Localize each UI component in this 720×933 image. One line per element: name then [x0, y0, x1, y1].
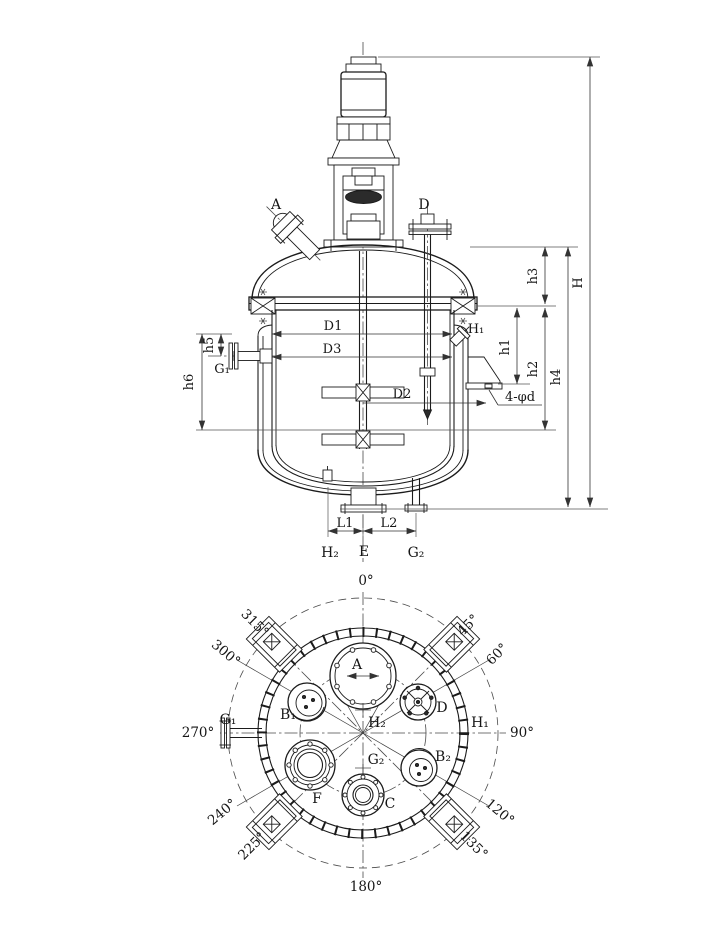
mechanical-seal — [346, 191, 382, 204]
label-h2-bottom: H₂ — [321, 545, 339, 561]
plan-label-g2: G₂ — [368, 752, 385, 768]
dim-h3: h3 — [526, 268, 541, 285]
angle-240: 240° — [205, 796, 240, 829]
plan-nozzle-c — [342, 774, 384, 816]
drive-assembly — [324, 57, 403, 251]
dim-l1: L1 — [337, 516, 354, 531]
plan-angle-labels: 0° 45° 60° 90° 120° 135° 180° 225° 240° … — [182, 573, 534, 895]
dim-h2: h2 — [526, 361, 541, 378]
label-nozzle-g1: G₁ — [214, 362, 230, 377]
note-bolt-holes: 4-φd — [505, 390, 535, 405]
bolt-note-leader — [489, 390, 498, 405]
angle-180: 180° — [350, 879, 383, 895]
impeller-lower — [322, 431, 404, 448]
plan-label-h2: H₂ — [368, 715, 386, 731]
plan-nozzle-a-manhole — [330, 643, 396, 709]
jacket-closure-left — [258, 325, 272, 336]
plan-label-a: A — [351, 657, 363, 673]
angle-60: 60° — [483, 640, 511, 668]
plan-nozzle-d — [400, 684, 436, 720]
plan-label-b1: B₁ — [280, 707, 296, 723]
reactor-drawing-page: A D D1 D3 D2 H₁ G₁ h5 h6 h1 h2 h3 h4 H L… — [0, 0, 720, 933]
nozzle-g2-bottom — [405, 478, 427, 513]
nozzle-a — [255, 195, 331, 271]
gear-reducer — [332, 140, 395, 158]
flange-clamp-left — [251, 289, 275, 324]
label-nozzle-d: D — [418, 197, 429, 213]
label-e-bottom: E — [359, 544, 369, 560]
dim-d2: D2 — [393, 387, 412, 402]
label-g2-bottom: G₂ — [408, 545, 425, 561]
drive-stand — [324, 165, 403, 251]
reactor-drawing: A D D1 D3 D2 H₁ G₁ h5 h6 h1 h2 h3 h4 H L… — [0, 0, 720, 933]
angle-120: 120° — [482, 796, 517, 829]
plan-label-b2: B₂ — [435, 749, 451, 765]
lantern-frame — [337, 124, 390, 140]
handhole-h2 — [323, 466, 332, 481]
coupling — [352, 168, 375, 176]
label-nozzle-a: A — [270, 197, 282, 213]
nozzle-d-dip-tube — [409, 203, 451, 425]
label-nozzle-h1: H₁ — [468, 322, 485, 337]
dim-h1: h1 — [498, 339, 513, 356]
dim-d3: D3 — [323, 342, 342, 357]
plan-nozzle-b2 — [401, 749, 437, 786]
support-lug — [466, 357, 502, 389]
plan-label-c: C — [385, 796, 396, 812]
dim-d1: D1 — [324, 319, 343, 334]
plan-label-g1: G₁ — [220, 712, 237, 728]
elevation-view: A D D1 D3 D2 H₁ G₁ h5 h6 h1 h2 h3 h4 H L… — [182, 42, 608, 562]
dim-h-total: H — [571, 277, 586, 288]
dip-tube-outlet — [424, 410, 432, 419]
plan-view: 0° 45° 60° 90° 120° 135° 180° 225° 240° … — [182, 573, 534, 895]
dim-h4: h4 — [549, 369, 564, 386]
angle-0: 0° — [358, 573, 373, 589]
plan-label-d: D — [436, 700, 447, 716]
motor-flange — [337, 117, 390, 124]
plan-label-f: F — [312, 791, 322, 807]
plan-label-h1: H₁ — [471, 715, 489, 731]
dim-l2: L2 — [381, 516, 398, 531]
plan-nozzle-f-sightglass — [285, 740, 335, 790]
dim-h5: h5 — [202, 337, 217, 354]
angle-300: 300° — [208, 637, 243, 670]
seal-housing — [347, 221, 380, 239]
dim-h6: h6 — [182, 374, 197, 391]
angle-90: 90° — [510, 725, 534, 741]
angle-270: 270° — [182, 725, 215, 741]
nozzle-e — [341, 488, 386, 514]
flange-clamp-right — [451, 289, 475, 324]
